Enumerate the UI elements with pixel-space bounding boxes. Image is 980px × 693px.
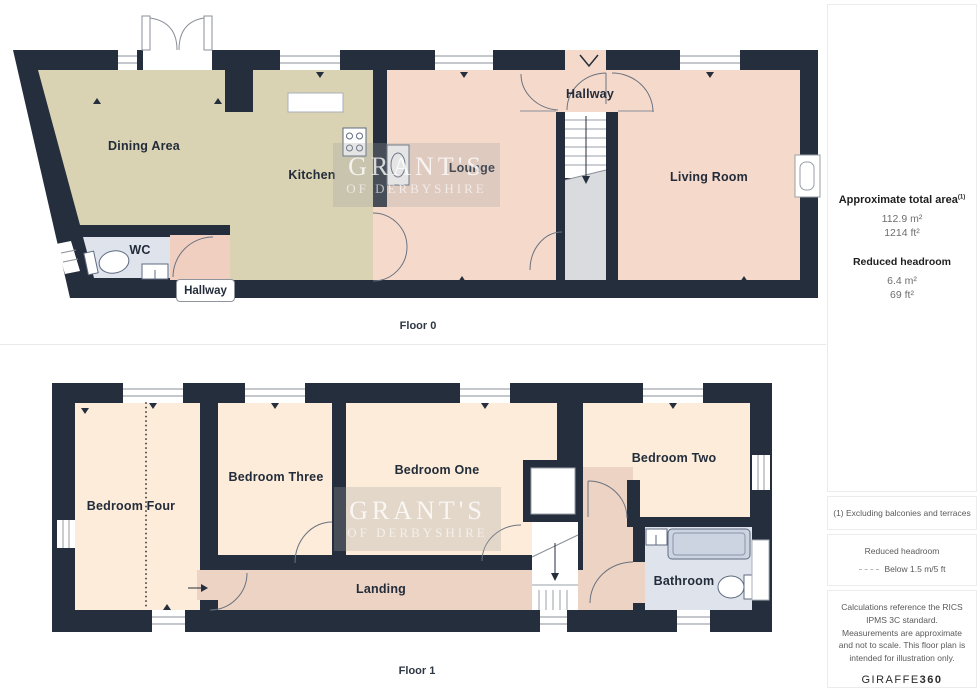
floor1-caption: Floor 1: [399, 665, 436, 677]
footnote-box: (1) Excluding balconies and terraces: [827, 496, 977, 530]
disclaimer-text: Calculations reference the RICS IPMS 3C …: [837, 601, 967, 665]
floor1-room-fills: [75, 403, 752, 610]
hallway-label-box: Hallway: [176, 279, 235, 302]
total-area-title: Approximate total area(1): [839, 194, 966, 206]
panel-divider: [0, 344, 826, 345]
footnote-marker: (1): [958, 194, 965, 200]
room-label-dining-area: Dining Area: [108, 139, 180, 153]
bathtub-icon: [668, 529, 750, 559]
room-label-wc: WC: [129, 243, 150, 257]
room-label-bedroom-one: Bedroom One: [395, 463, 480, 477]
dashed-line-icon: [859, 569, 879, 570]
room-label-landing: Landing: [356, 582, 406, 596]
room-label-bedroom-two: Bedroom Two: [632, 451, 717, 465]
floor1-plan: [0, 345, 826, 693]
room-label-kitchen: Kitchen: [288, 168, 335, 182]
floor1-stairs: [532, 522, 578, 610]
room-label-hallway-top: Hallway: [566, 87, 614, 101]
giraffe360-logo: GIRAFFE360: [837, 674, 967, 686]
room-label-bedroom-three: Bedroom Three: [229, 470, 324, 484]
bathroom-radiator: [752, 540, 769, 600]
legend-box: Reduced headroom Below 1.5 m/5 ft: [827, 534, 977, 586]
floorplan-page: Dining Area Kitchen Lounge Hallway Livin…: [0, 0, 980, 693]
kitchen-sink-icon: [387, 145, 409, 185]
radiator-icon: [795, 155, 820, 197]
headroom-m2: 6.4 m²: [839, 274, 966, 288]
disclaimer-box: Calculations reference the RICS IPMS 3C …: [827, 590, 977, 688]
room-label-bedroom-four: Bedroom Four: [87, 499, 176, 513]
total-area-m2: 112.9 m²: [839, 212, 966, 226]
floor0-stairs: [565, 112, 606, 280]
headroom-ft2: 69 ft²: [839, 288, 966, 302]
total-area-ft2: 1214 ft²: [839, 226, 966, 240]
area-summary-box: Approximate total area(1) 112.9 m² 1214 …: [827, 4, 977, 492]
legend-value: Below 1.5 m/5 ft: [885, 564, 946, 574]
cupboard: [531, 468, 575, 514]
kitchen-counter: [288, 93, 343, 112]
floor0-caption: Floor 0: [400, 320, 437, 332]
room-label-hallway-bottom: Hallway: [184, 285, 227, 297]
excluding-note: (1) Excluding balconies and terraces: [833, 508, 971, 518]
bathroom-sink-icon: [646, 529, 667, 545]
reduced-headroom-title: Reduced headroom: [839, 256, 966, 268]
room-label-living-room: Living Room: [670, 170, 748, 184]
room-label-bathroom: Bathroom: [654, 574, 715, 588]
toilet-icon-2: [718, 575, 754, 599]
floor0-room-fills: [38, 50, 800, 280]
legend-title: Reduced headroom: [865, 546, 940, 556]
room-label-lounge: Lounge: [449, 161, 495, 175]
french-doors: [142, 16, 212, 70]
hob-icon: [343, 128, 366, 156]
wc-sink-icon: [142, 264, 168, 279]
